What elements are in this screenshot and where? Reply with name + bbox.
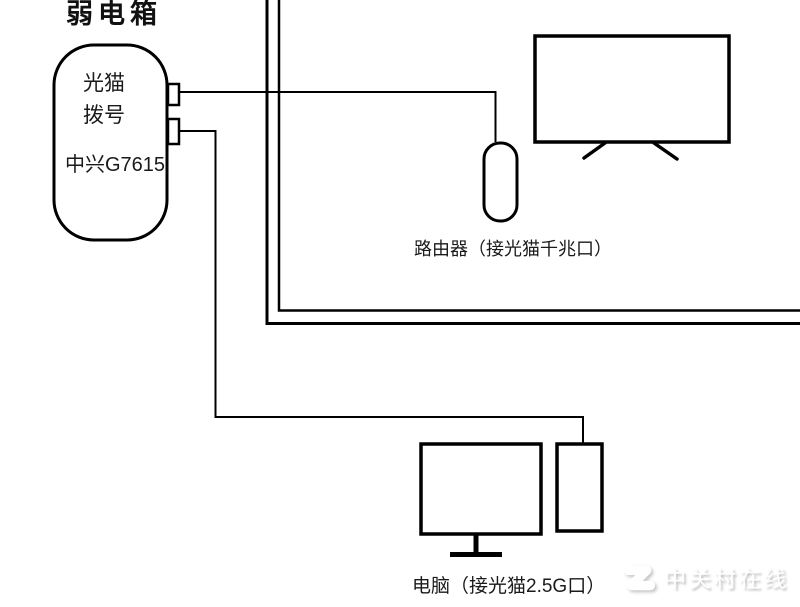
modem-label: 光猫 拨号 [83, 68, 125, 132]
watermark-brand: 中关村在线 [664, 562, 789, 594]
router-shape [484, 143, 517, 221]
zol-logo-icon [621, 562, 659, 594]
page-title: 弱电箱 [66, 0, 162, 28]
monitor-shape [421, 444, 541, 534]
tv-shape [535, 36, 729, 142]
tv-leg-right [654, 143, 677, 159]
wire-modem-to-pc [178, 131, 583, 443]
wall-outline-inner [279, 0, 800, 311]
modem-label-line1: 光猫 [83, 68, 125, 100]
modem-model: 中兴G7615 [65, 153, 165, 177]
network-diagram: 弱电箱 光猫 拨号 中兴G7615 路由器（接光猫千兆口） 电脑（接光猫2.5G… [0, 0, 800, 607]
tv-leg-left [584, 143, 605, 158]
pc-label: 电脑（接光猫2.5G口） [412, 575, 605, 598]
modem-port-1 [168, 84, 179, 105]
modem-label-line2: 拨号 [83, 100, 125, 132]
watermark: 中关村在线 [621, 562, 789, 594]
pc-tower-shape [557, 444, 602, 531]
wire-modem-to-router [178, 92, 496, 142]
router-label: 路由器（接光猫千兆口） [414, 238, 612, 260]
modem-port-2 [168, 119, 179, 144]
